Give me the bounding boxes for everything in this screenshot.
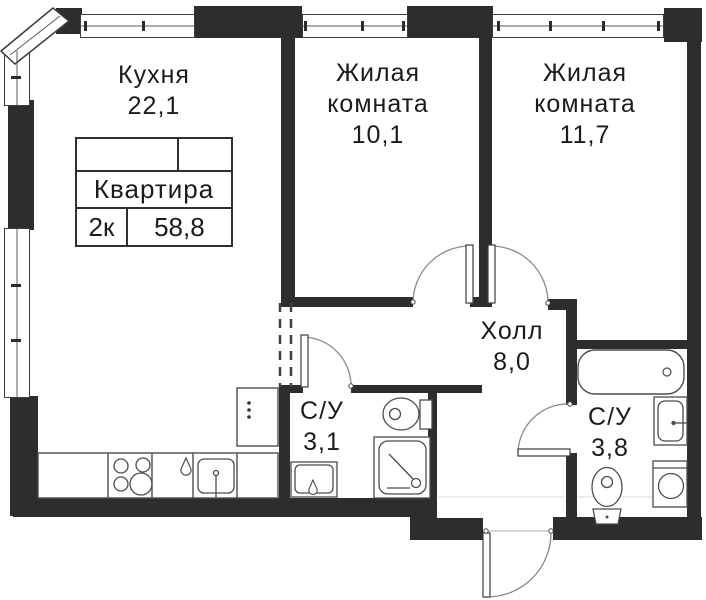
- door-room2: [488, 245, 548, 303]
- title-block-cell-empty-1: [77, 139, 179, 170]
- shower-icon: [374, 437, 430, 498]
- bathtub-icon: [578, 350, 684, 394]
- washbasin2-icon: [654, 397, 687, 445]
- kitchen-counter: [38, 453, 278, 498]
- room-area: 22,1: [84, 91, 224, 122]
- label-kitchen: Кухня 22,1: [84, 60, 224, 122]
- room-name: С/У: [564, 402, 656, 433]
- door-bath1: [301, 335, 351, 387]
- label-bath2: С/У 3,8: [564, 402, 656, 464]
- fridge-icon: [237, 388, 278, 446]
- floorplan: Кухня 22,1 Жилая комната 10,1 Жилая комн…: [0, 0, 706, 600]
- room-name: С/У: [276, 396, 368, 427]
- title-block-rooms-code: 2к: [77, 209, 128, 245]
- washing-machine-icon: [653, 461, 687, 507]
- toilet-icon: [383, 398, 432, 430]
- title-block-title: Квартира: [77, 172, 231, 209]
- room-area: 3,8: [564, 433, 656, 464]
- door-bath2: [518, 404, 570, 456]
- corner-chamfer-window: [1, 8, 69, 64]
- washbasin-icon: [291, 462, 337, 497]
- label-room1: Жилая комната 10,1: [300, 58, 456, 151]
- room-area: 11,7: [507, 120, 663, 151]
- kitchen-hall-dashed-boundary: [280, 303, 291, 387]
- room-name: Жилая комната: [507, 58, 663, 120]
- title-block-bottom-row: 2к 58,8: [77, 209, 231, 245]
- room-area: 3,1: [276, 427, 368, 458]
- room-name: Холл: [462, 316, 562, 347]
- title-block-top-row: [77, 139, 231, 172]
- toilet2-icon: [592, 468, 622, 525]
- room-area: 8,0: [462, 347, 562, 378]
- room-name: Жилая комната: [300, 58, 456, 120]
- room-name: Кухня: [84, 60, 224, 91]
- title-block-cell-empty-2: [179, 139, 231, 170]
- title-block: Квартира 2к 58,8: [75, 137, 233, 247]
- label-room2: Жилая комната 11,7: [507, 58, 663, 151]
- door-room1: [413, 245, 473, 303]
- label-hall: Холл 8,0: [462, 316, 562, 378]
- room-area: 10,1: [300, 120, 456, 151]
- title-block-total-area: 58,8: [128, 209, 231, 245]
- entrance-door: [483, 533, 551, 597]
- label-bath1: С/У 3,1: [276, 396, 368, 458]
